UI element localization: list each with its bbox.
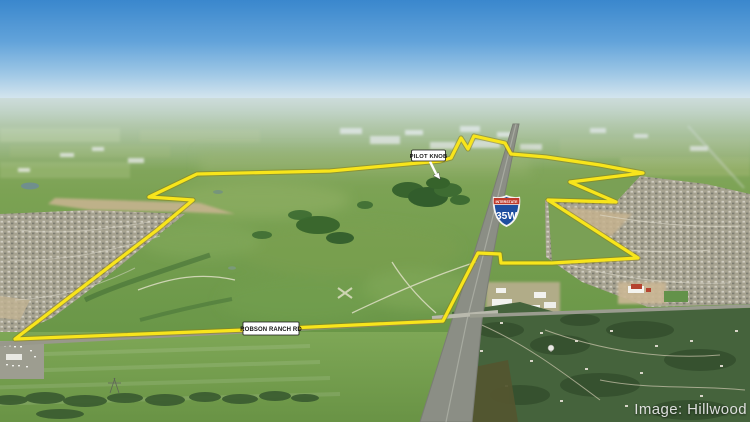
sky (0, 0, 750, 104)
interstate-35w-shield: INTERSTATE 35W (493, 196, 520, 226)
credit-text: Image: Hillwood (634, 401, 747, 418)
aerial-photo: PILOT KNOB ROBSON RANCH RD INTERSTATE 35… (0, 0, 750, 422)
foreground-field (0, 332, 452, 422)
parking-lot (0, 341, 44, 379)
road-label-callout: ROBSON RANCH RD (240, 322, 302, 335)
road-label-text: ROBSON RANCH RD (240, 327, 302, 333)
pilot-knob-label-text: PILOT KNOB (410, 154, 448, 160)
shield-route-number: 35W (496, 211, 517, 222)
shield-top-text: INTERSTATE (496, 200, 519, 204)
